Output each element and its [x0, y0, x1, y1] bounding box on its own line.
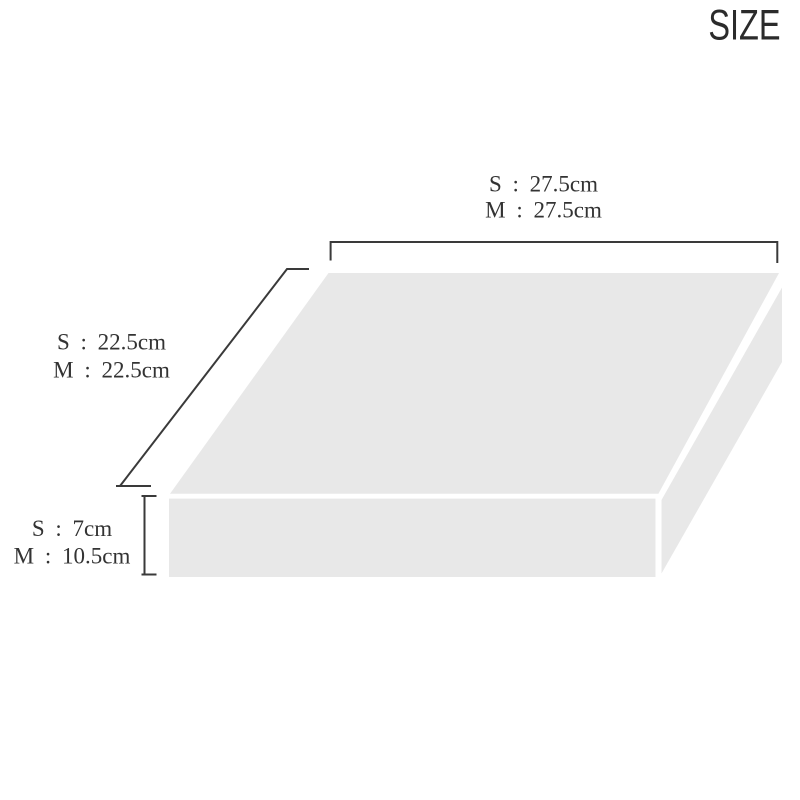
svg-text:S : 22.5cm: S : 22.5cm	[57, 329, 166, 354]
svg-text:M : 10.5cm: M : 10.5cm	[14, 544, 131, 569]
svg-text:S : 27.5cm: S : 27.5cm	[489, 172, 598, 197]
svg-text:M : 27.5cm: M : 27.5cm	[485, 198, 602, 223]
svg-text:S : 7cm: S : 7cm	[32, 516, 112, 541]
svg-text:M : 22.5cm: M : 22.5cm	[53, 357, 170, 382]
svg-text:SIZE: SIZE	[708, 2, 780, 49]
